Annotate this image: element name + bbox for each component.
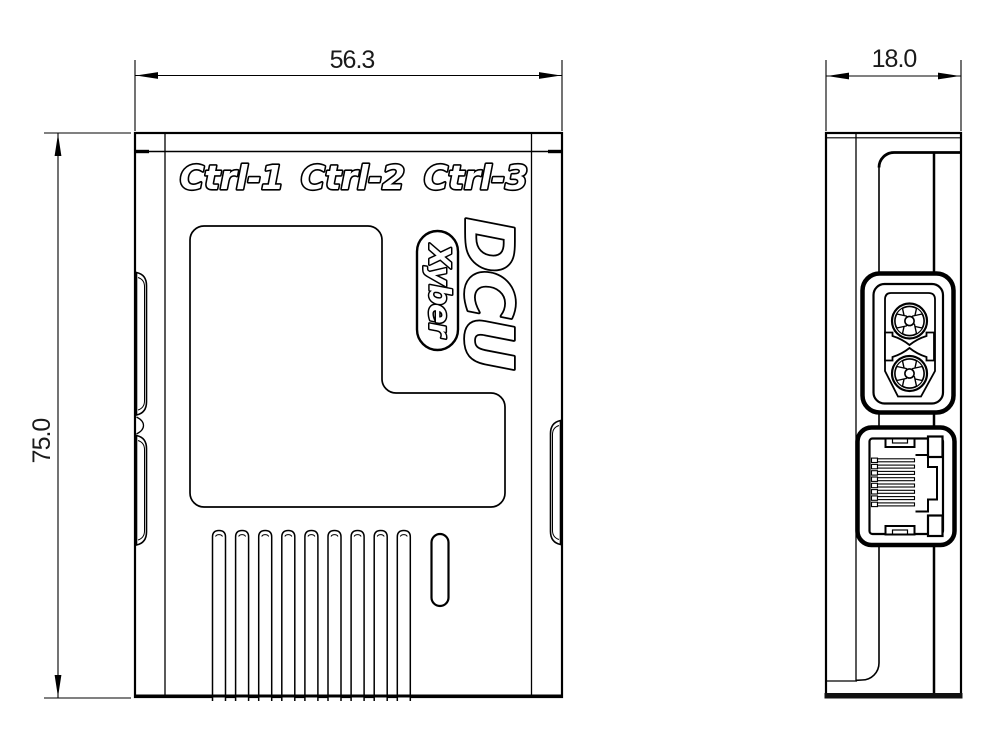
vent-slots [213,531,411,702]
drawing-canvas: Ctrl-1 Ctrl-2 Ctrl-3 DCU Xyber [0,0,1000,737]
xyber-badge: Xyber [417,231,458,350]
power-terminal-upper [892,304,927,339]
arrow-left [827,73,849,80]
led-window-slot [432,534,449,606]
left-clip-lower [137,436,147,546]
dim-front-height: 75.0 [28,133,131,698]
side-bottom-edge [825,693,963,699]
vent-slot [397,531,410,702]
side-body-outline [826,133,961,697]
dim-front-width: 56.3 [135,46,562,131]
ctrl-2-label: Ctrl-2 [301,158,405,197]
port-labels: Ctrl-1 Ctrl-2 Ctrl-3 [180,158,528,197]
xyber-brand-text: Xyber [423,243,457,339]
dim-front-height-value: 75.0 [28,419,56,464]
arrow-right [938,73,960,80]
arrow-up [55,134,62,156]
ethernet-side-pad-bottom [928,516,943,537]
ethernet-port [858,428,955,546]
ctrl-1-label: Ctrl-1 [180,158,284,197]
front-view: Ctrl-1 Ctrl-2 Ctrl-3 DCU Xyber [135,133,562,701]
ctrl-3-label: Ctrl-3 [424,158,528,197]
dim-front-width-value: 56.3 [330,46,375,74]
vent-slot [259,531,272,702]
arrow-down [55,675,62,697]
power-connector [863,274,954,413]
vent-slot [236,531,249,702]
arrow-right [539,72,561,79]
power-terminal-lower [892,356,927,391]
vent-slot [282,531,295,702]
dcu-logo: DCU [450,218,527,370]
vent-slot [213,531,226,702]
dim-side-depth: 18.0 [826,45,961,131]
technical-drawing: Ctrl-1 Ctrl-2 Ctrl-3 DCU Xyber [0,0,1000,737]
vent-slot [305,531,318,702]
vent-slot [374,531,387,702]
right-clip [551,421,561,545]
ethernet-side-pad-top [928,437,943,458]
dim-side-depth-value: 18.0 [872,45,917,73]
arrow-left [136,72,158,79]
left-clip-upper [137,273,147,416]
side-view [825,133,963,699]
vent-slot [351,531,364,702]
vent-slot [328,531,341,702]
